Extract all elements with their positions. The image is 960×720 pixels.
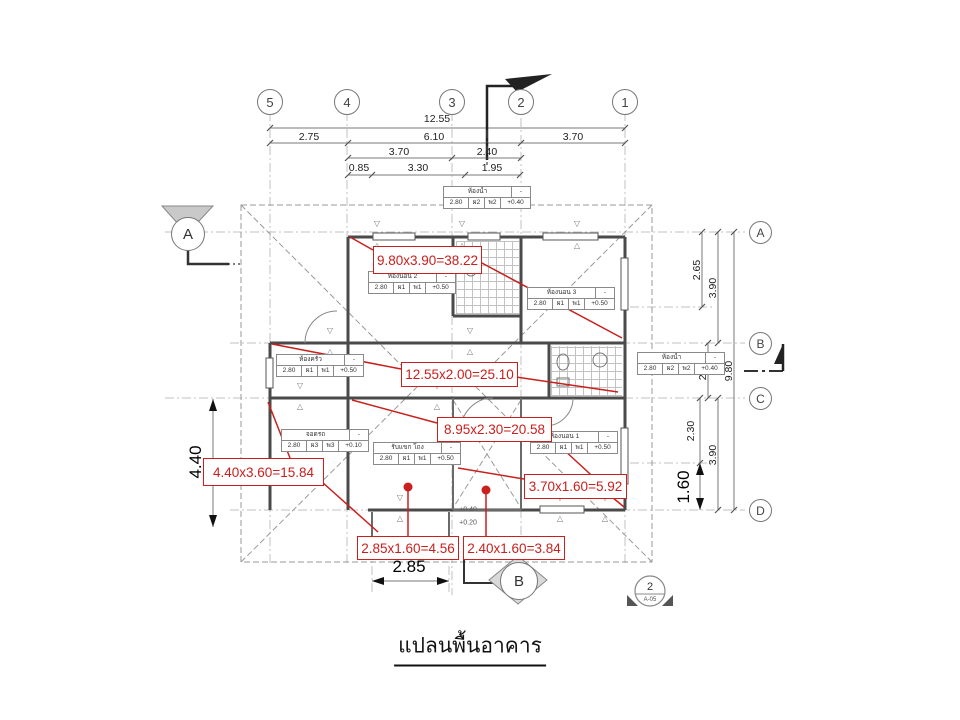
- room-spec: ผ3: [307, 441, 323, 451]
- dimension-2.75: 2.75: [299, 131, 319, 143]
- room-spec: +0.40: [695, 364, 724, 374]
- room-spec: 2.80: [444, 198, 469, 208]
- room-spec: +0.50: [426, 283, 455, 293]
- opening-tag: ▽: [574, 220, 580, 228]
- room-spec: ผ1: [394, 283, 410, 293]
- room-spec: พ2: [679, 364, 695, 374]
- room-label: รับแขก โถง-2.80ผ1พ1+0.50: [373, 442, 461, 465]
- room-label: ห้องน้ำ-2.80ผ2พ2+0.40: [637, 352, 725, 375]
- drawing-title: แปลนพื้นอาคาร: [394, 630, 546, 667]
- room-spec: ผ1: [302, 366, 318, 376]
- room-label: ห้องนอน 2-2.80ผ1พ1+0.50: [368, 271, 456, 294]
- grid-bubble-D: D: [749, 499, 772, 522]
- dimension-12.55: 12.55: [424, 113, 450, 125]
- floor-plan-page: แปลนพื้นอาคาร A B 2 A-05 54321ABCD12.552…: [0, 0, 960, 720]
- dimension-2.85: 2.85: [392, 557, 425, 577]
- room-spec: 2.80: [531, 443, 556, 453]
- dimension-1.95: 1.95: [482, 162, 502, 174]
- room-spec: 2.80: [528, 299, 553, 309]
- room-spec: พ1: [569, 299, 585, 309]
- room-label: ห้องน้ำ-2.80ผ2พ2+0.40: [443, 186, 531, 209]
- room-name: ห้องน้ำ: [444, 187, 512, 197]
- room-name: รับแขก โถง: [374, 443, 442, 453]
- room-spec: 2.80: [277, 366, 302, 376]
- area-annotation: 3.70x1.60=5.92: [524, 474, 627, 499]
- dimension-2.65: 2.65: [691, 260, 703, 280]
- dimension-3.30: 3.30: [408, 162, 428, 174]
- area-annotation: 9.80x3.90=38.22: [373, 246, 482, 274]
- room-spec: 2.80: [638, 364, 663, 374]
- grid-bubble-2: 2: [508, 89, 534, 115]
- room-spec: +0.10: [339, 441, 368, 451]
- opening-tag: △: [574, 242, 580, 250]
- room-name: จอดรถ: [282, 430, 350, 440]
- opening-tag: ▽: [467, 327, 473, 335]
- section-b-bubble: B: [500, 562, 538, 600]
- dimension-3.90: 3.90: [707, 278, 719, 298]
- grid-bubble-5: 5: [257, 89, 283, 115]
- dimension-3.70: 3.70: [389, 146, 409, 158]
- opening-tag: ▽: [397, 494, 403, 502]
- room-name: ห้องน้ำ: [638, 353, 706, 363]
- room-spec: พ1: [318, 366, 334, 376]
- detail-number: 2: [647, 581, 653, 593]
- room-spec: พ1: [410, 283, 426, 293]
- room-spec: +0.50: [588, 443, 617, 453]
- level-mark: +0.20: [459, 520, 477, 527]
- room-spec: +0.50: [334, 366, 363, 376]
- room-label: ห้องครัว-2.80ผ1พ1+0.50: [276, 354, 364, 377]
- room-spec: ผ2: [469, 198, 485, 208]
- room-spec: +0.40: [501, 198, 530, 208]
- opening-tag: △: [557, 515, 563, 523]
- room-spec: ผ1: [399, 454, 415, 464]
- room-name: ห้องนอน 3: [528, 288, 596, 298]
- grid-bubble-A: A: [749, 221, 772, 244]
- dimension-3.70: 3.70: [563, 131, 583, 143]
- room-spec: +0.50: [585, 299, 614, 309]
- detail-sheet: A-05: [644, 597, 657, 603]
- grid-bubble-1: 1: [612, 89, 638, 115]
- area-annotation: 12.55x2.00=25.10: [401, 362, 518, 387]
- opening-tag: △: [434, 403, 440, 411]
- opening-tag: △: [467, 348, 473, 356]
- room-spec: พ2: [485, 198, 501, 208]
- room-spec: 2.80: [374, 454, 399, 464]
- opening-tag: ▽: [327, 327, 333, 335]
- room-spec: พ1: [415, 454, 431, 464]
- area-annotation: 2.40x1.60=3.84: [463, 536, 565, 560]
- dimension-1.60: 1.60: [674, 470, 694, 503]
- section-a-label: A: [183, 226, 193, 243]
- dimension-2.40: 2.40: [477, 146, 497, 158]
- dimension-3.90: 3.90: [707, 445, 719, 465]
- section-b-label: B: [514, 573, 524, 590]
- annotation-dots: [404, 483, 491, 495]
- room-spec: +0.50: [431, 454, 460, 464]
- dimension-ticks: [267, 125, 737, 513]
- opening-tag: ▽: [374, 220, 380, 228]
- room-spec: พ1: [572, 443, 588, 453]
- opening-tag: △: [397, 515, 403, 523]
- room-spec: 2.80: [282, 441, 307, 451]
- room-spec: ผ2: [663, 364, 679, 374]
- opening-tag: ▽: [459, 220, 465, 228]
- room-label: จอดรถ-2.80ผ3พ3+0.10: [281, 429, 369, 452]
- room-spec: ผ1: [556, 443, 572, 453]
- grid-bubble-C: C: [749, 387, 772, 410]
- level-mark: +0.40: [459, 507, 477, 514]
- grid-bubble-B: B: [749, 332, 772, 355]
- area-annotation: 4.40x3.60=15.84: [203, 458, 324, 486]
- dimension-6.10: 6.10: [424, 131, 444, 143]
- area-annotation: 2.85x1.60=4.56: [357, 536, 459, 560]
- opening-tag: △: [297, 403, 303, 411]
- section-a-bubble: A: [171, 217, 205, 251]
- room-spec: ผ1: [553, 299, 569, 309]
- room-spec: พ3: [323, 441, 339, 451]
- area-annotation: 8.95x2.30=20.58: [437, 417, 552, 442]
- room-name: ห้องครัว: [277, 355, 345, 365]
- dimension-0.85: 0.85: [349, 162, 369, 174]
- grid-bubble-3: 3: [439, 89, 465, 115]
- opening-tag: ▽: [297, 382, 303, 390]
- dimension-2.30: 2.30: [685, 421, 697, 441]
- room-label: ห้องนอน 3-2.80ผ1พ1+0.50: [527, 287, 615, 310]
- room-spec: 2.80: [369, 283, 394, 293]
- opening-tag: △: [602, 515, 608, 523]
- plan-linework: [0, 0, 960, 720]
- grid-bubble-4: 4: [334, 89, 360, 115]
